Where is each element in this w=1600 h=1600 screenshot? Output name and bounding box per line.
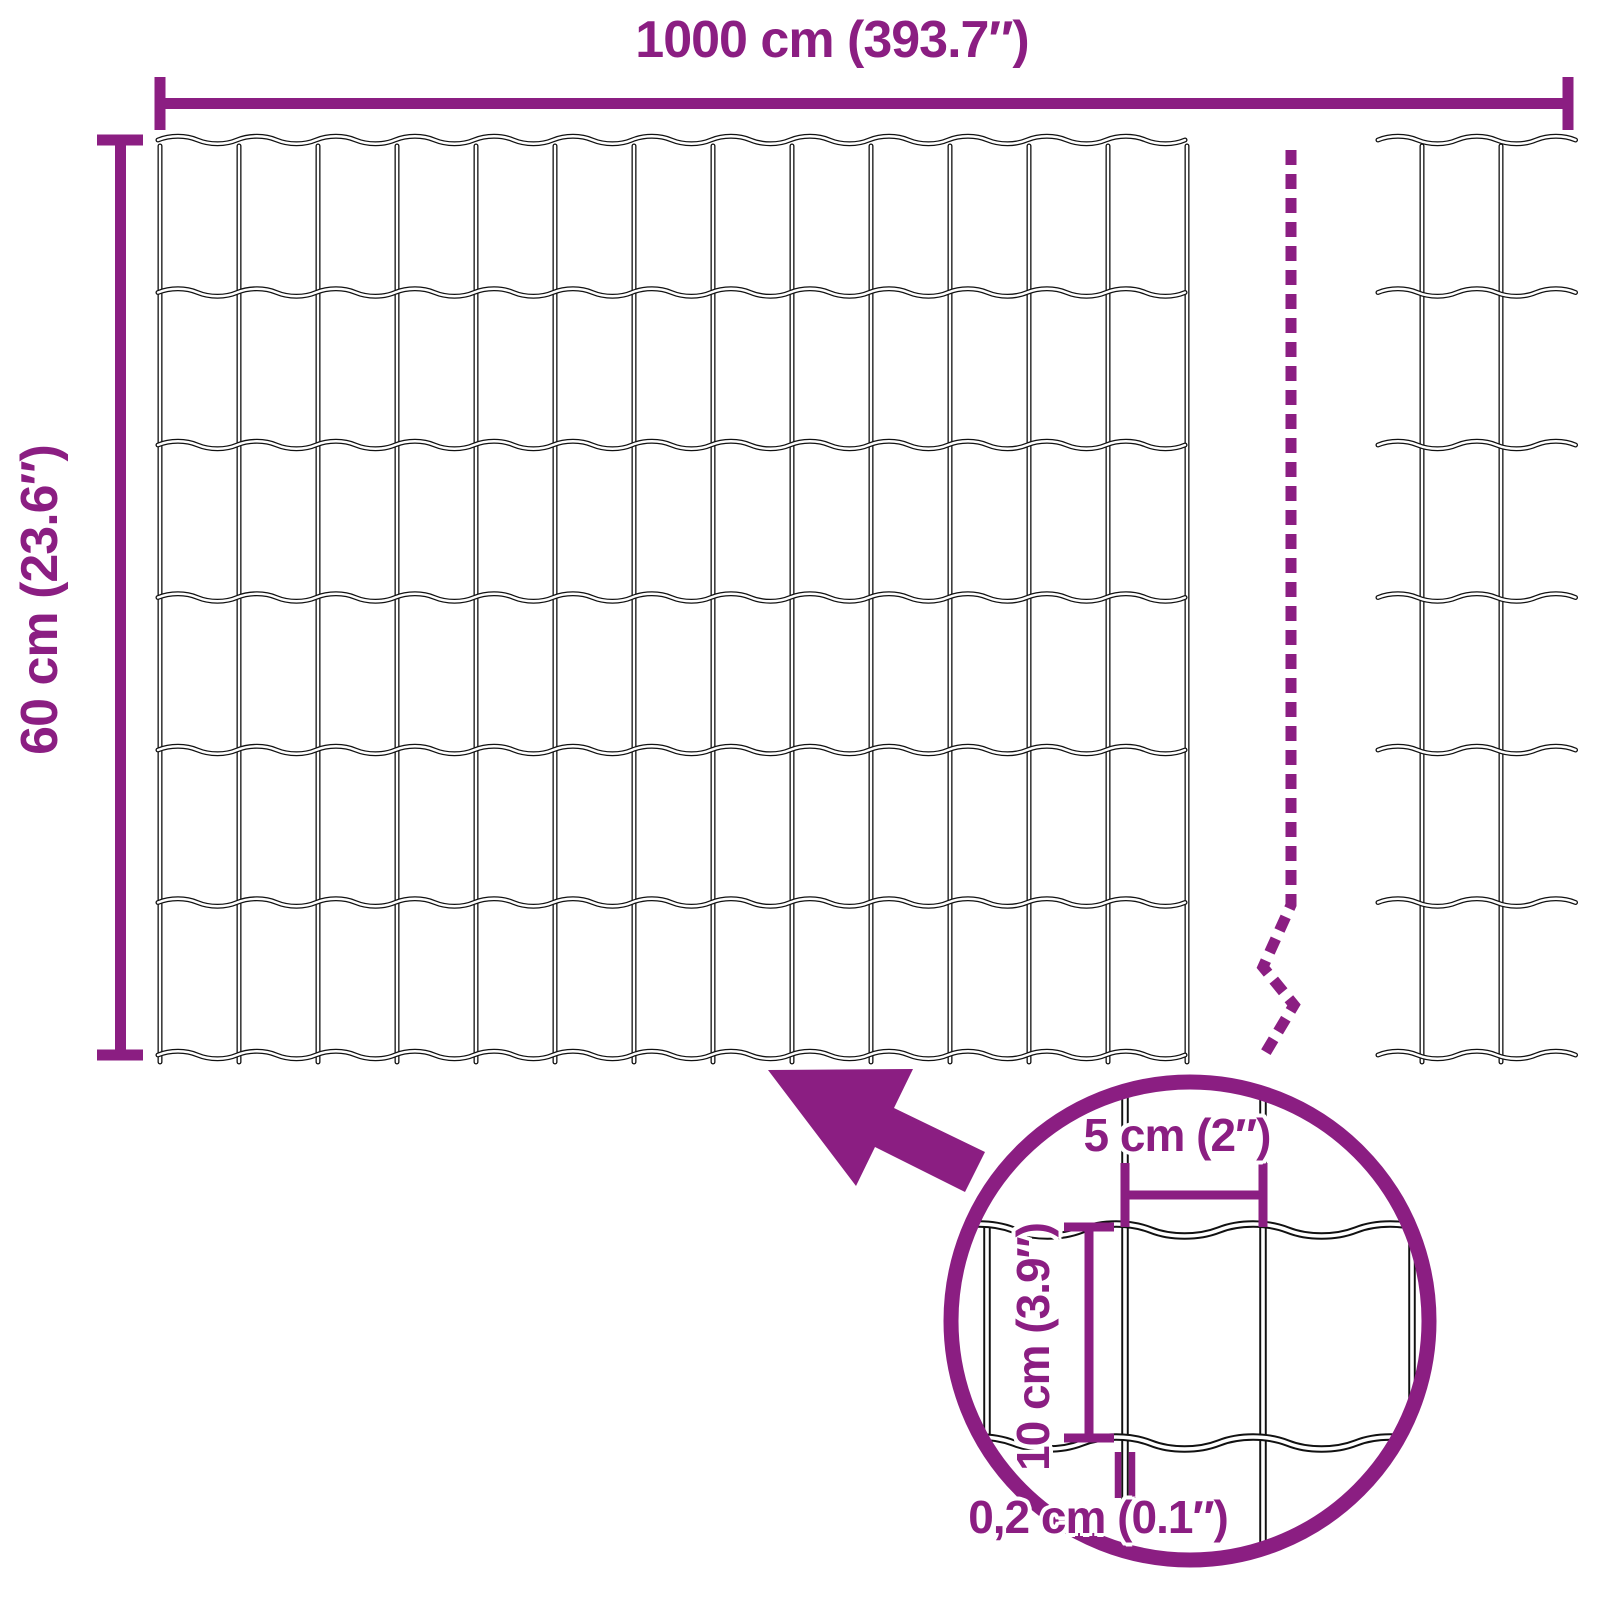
- dimension-roll-height: [97, 140, 143, 1055]
- diagram-canvas: [0, 0, 1600, 1600]
- roll-length-label: 1000 cm (393.7″): [635, 14, 1028, 66]
- wire-thickness-label: 0,2 cm (0.1″): [968, 1494, 1228, 1540]
- mesh-panel-main: [158, 136, 1187, 1062]
- zoom-arrow-icon: [768, 1069, 985, 1192]
- mesh-opening-height-label: 10 cm (3.9″): [1010, 1223, 1056, 1471]
- break-dashed-line: [1263, 150, 1294, 1057]
- mesh-opening-width-label: 5 cm (2″): [1084, 1112, 1271, 1158]
- fence-dimension-diagram: 1000 cm (393.7″) 60 cm (23.6″) 5 cm (2″)…: [0, 0, 1600, 1600]
- mesh-panel-continuation: [1378, 136, 1576, 1062]
- dimension-roll-length: [160, 77, 1568, 130]
- roll-height-label: 60 cm (23.6″): [14, 445, 66, 755]
